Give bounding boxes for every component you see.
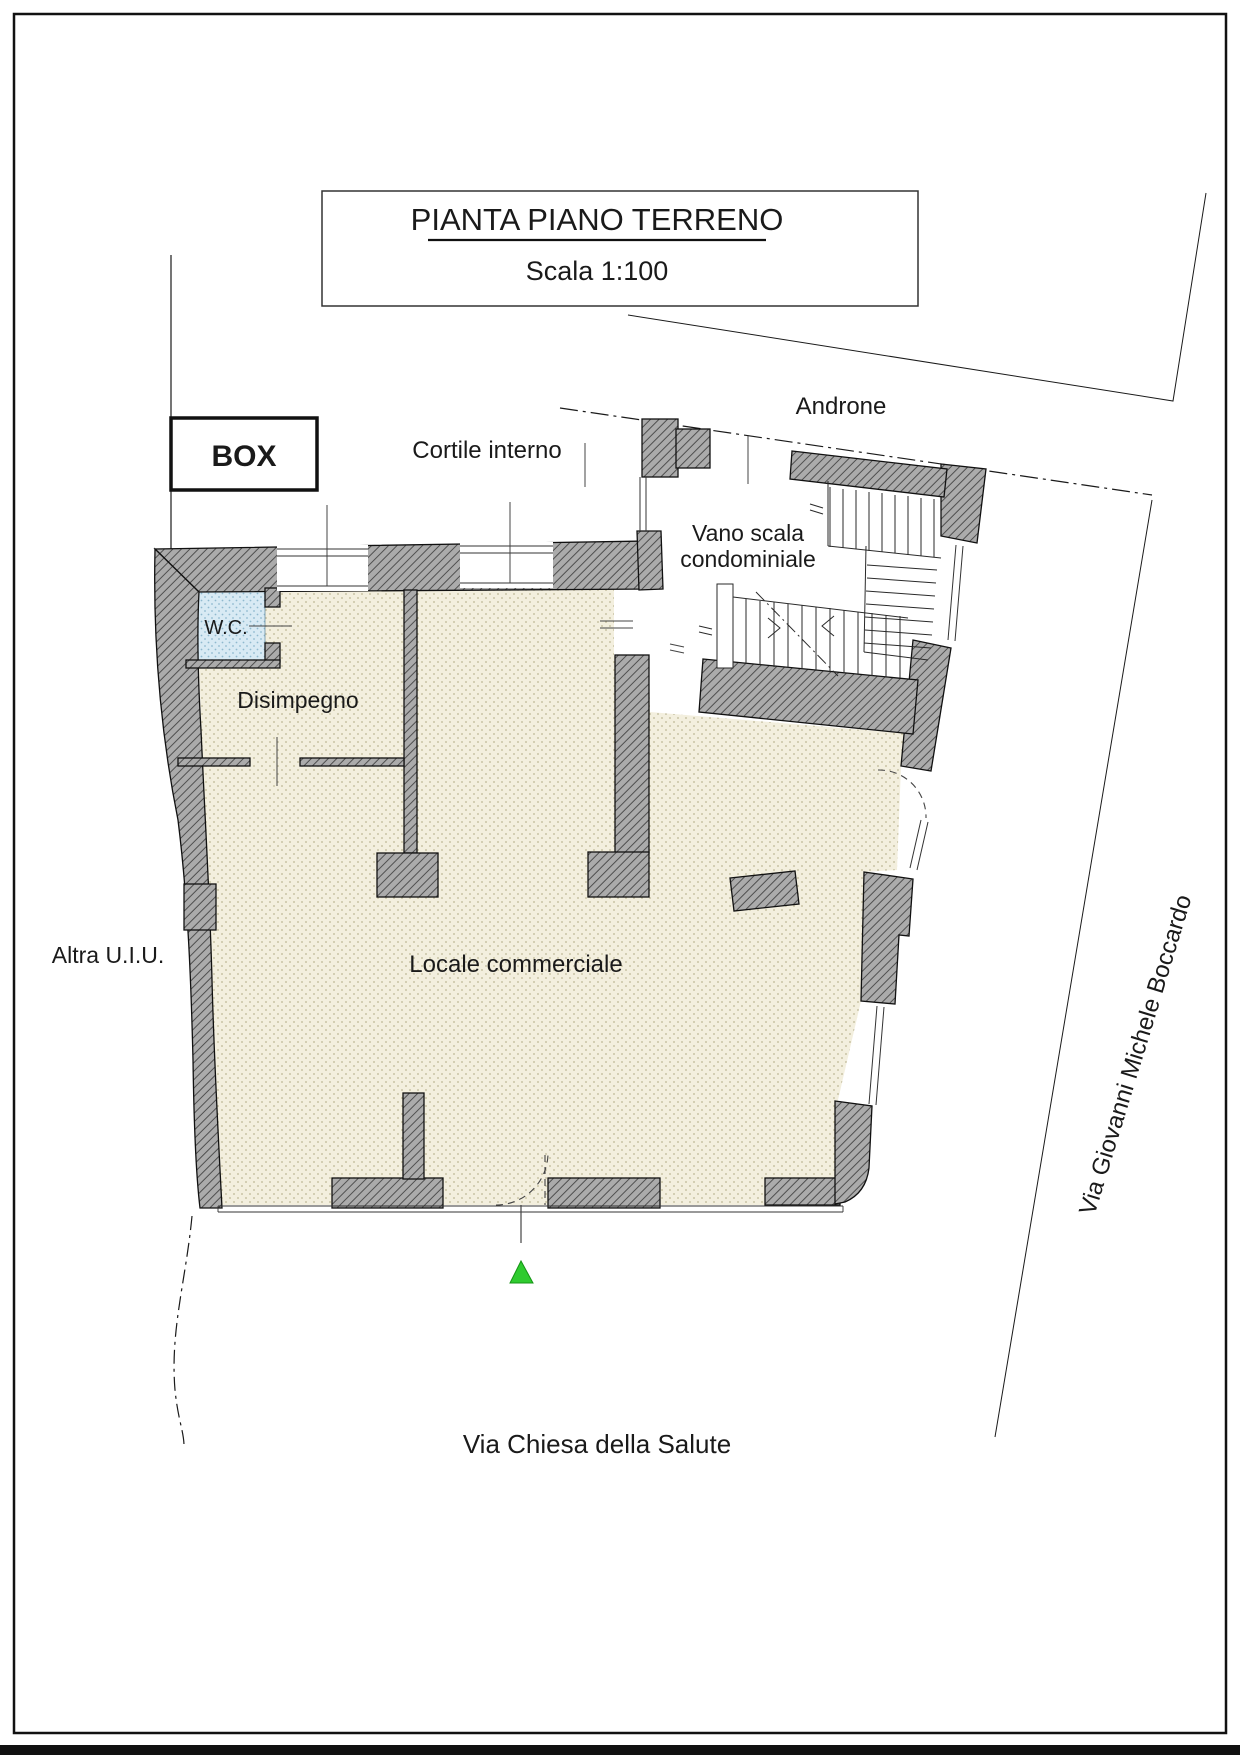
floor-plan-sheet: PIANTA PIANO TERRENO Scala 1:100 BOX xyxy=(0,0,1240,1755)
box-garage: BOX xyxy=(171,418,317,490)
disimpegno-wall-left xyxy=(178,758,250,766)
title-block: PIANTA PIANO TERRENO Scala 1:100 xyxy=(322,191,918,306)
stair-pier-a xyxy=(642,419,678,477)
wall-east-3 xyxy=(861,872,913,1004)
floor-plan-drawing: PIANTA PIANO TERRENO Scala 1:100 BOX xyxy=(0,0,1240,1755)
wc-label: W.C. xyxy=(204,617,247,639)
stair-wall-top xyxy=(790,451,947,497)
androne-label: Androne xyxy=(796,393,887,420)
staircase xyxy=(699,481,941,678)
stair-stub-pier xyxy=(588,852,649,897)
stair-pier-b xyxy=(676,429,710,468)
plan-title: PIANTA PIANO TERRENO xyxy=(411,202,784,237)
locale-commerciale-label: Locale commerciale xyxy=(409,951,622,978)
stair-wall-west xyxy=(637,531,663,590)
window-east-3 xyxy=(869,1006,884,1105)
box-label: BOX xyxy=(211,440,276,473)
angled-pier xyxy=(730,871,799,911)
wc-wall-bottom xyxy=(186,660,280,668)
entrance-marker-triangle xyxy=(510,1261,533,1283)
stair-arrow-2 xyxy=(822,616,834,636)
wall-south-pier3 xyxy=(765,1178,840,1205)
partition-wall xyxy=(404,590,417,853)
altra-uiu-label: Altra U.I.U. xyxy=(52,942,164,968)
window-north-2 xyxy=(460,542,553,588)
wall-east-1 xyxy=(941,464,986,543)
window-east-2 xyxy=(910,820,928,870)
stair-stub-wall xyxy=(615,655,649,853)
wc-wall-right-bottom xyxy=(265,643,280,662)
window-north-1 xyxy=(277,545,368,591)
wall-south-pier1 xyxy=(332,1178,443,1208)
plan-scale: Scala 1:100 xyxy=(526,256,669,286)
disimpegno-wall-right xyxy=(300,758,404,766)
via-boccardo-label: Via Giovanni Michele Boccardo xyxy=(1074,892,1197,1218)
wall-south-pier2 xyxy=(548,1178,660,1208)
wall-south-pier1-stem xyxy=(403,1093,424,1179)
vano-scala-label-line1: Vano scala xyxy=(692,520,804,546)
wall-east-corner xyxy=(835,1101,872,1204)
via-chiesa-label: Via Chiesa della Salute xyxy=(463,1429,731,1459)
partition-pier xyxy=(377,853,438,897)
disimpegno-label: Disimpegno xyxy=(237,687,358,713)
window-east-1 xyxy=(948,545,963,641)
shopfront-glazing xyxy=(218,1206,843,1212)
window-stair-west xyxy=(640,477,646,531)
wall-west-notch xyxy=(184,884,216,930)
cortile-interno-label: Cortile interno xyxy=(412,437,561,464)
wall-north xyxy=(155,541,650,592)
vano-scala-label-line2: condominiale xyxy=(680,546,816,572)
